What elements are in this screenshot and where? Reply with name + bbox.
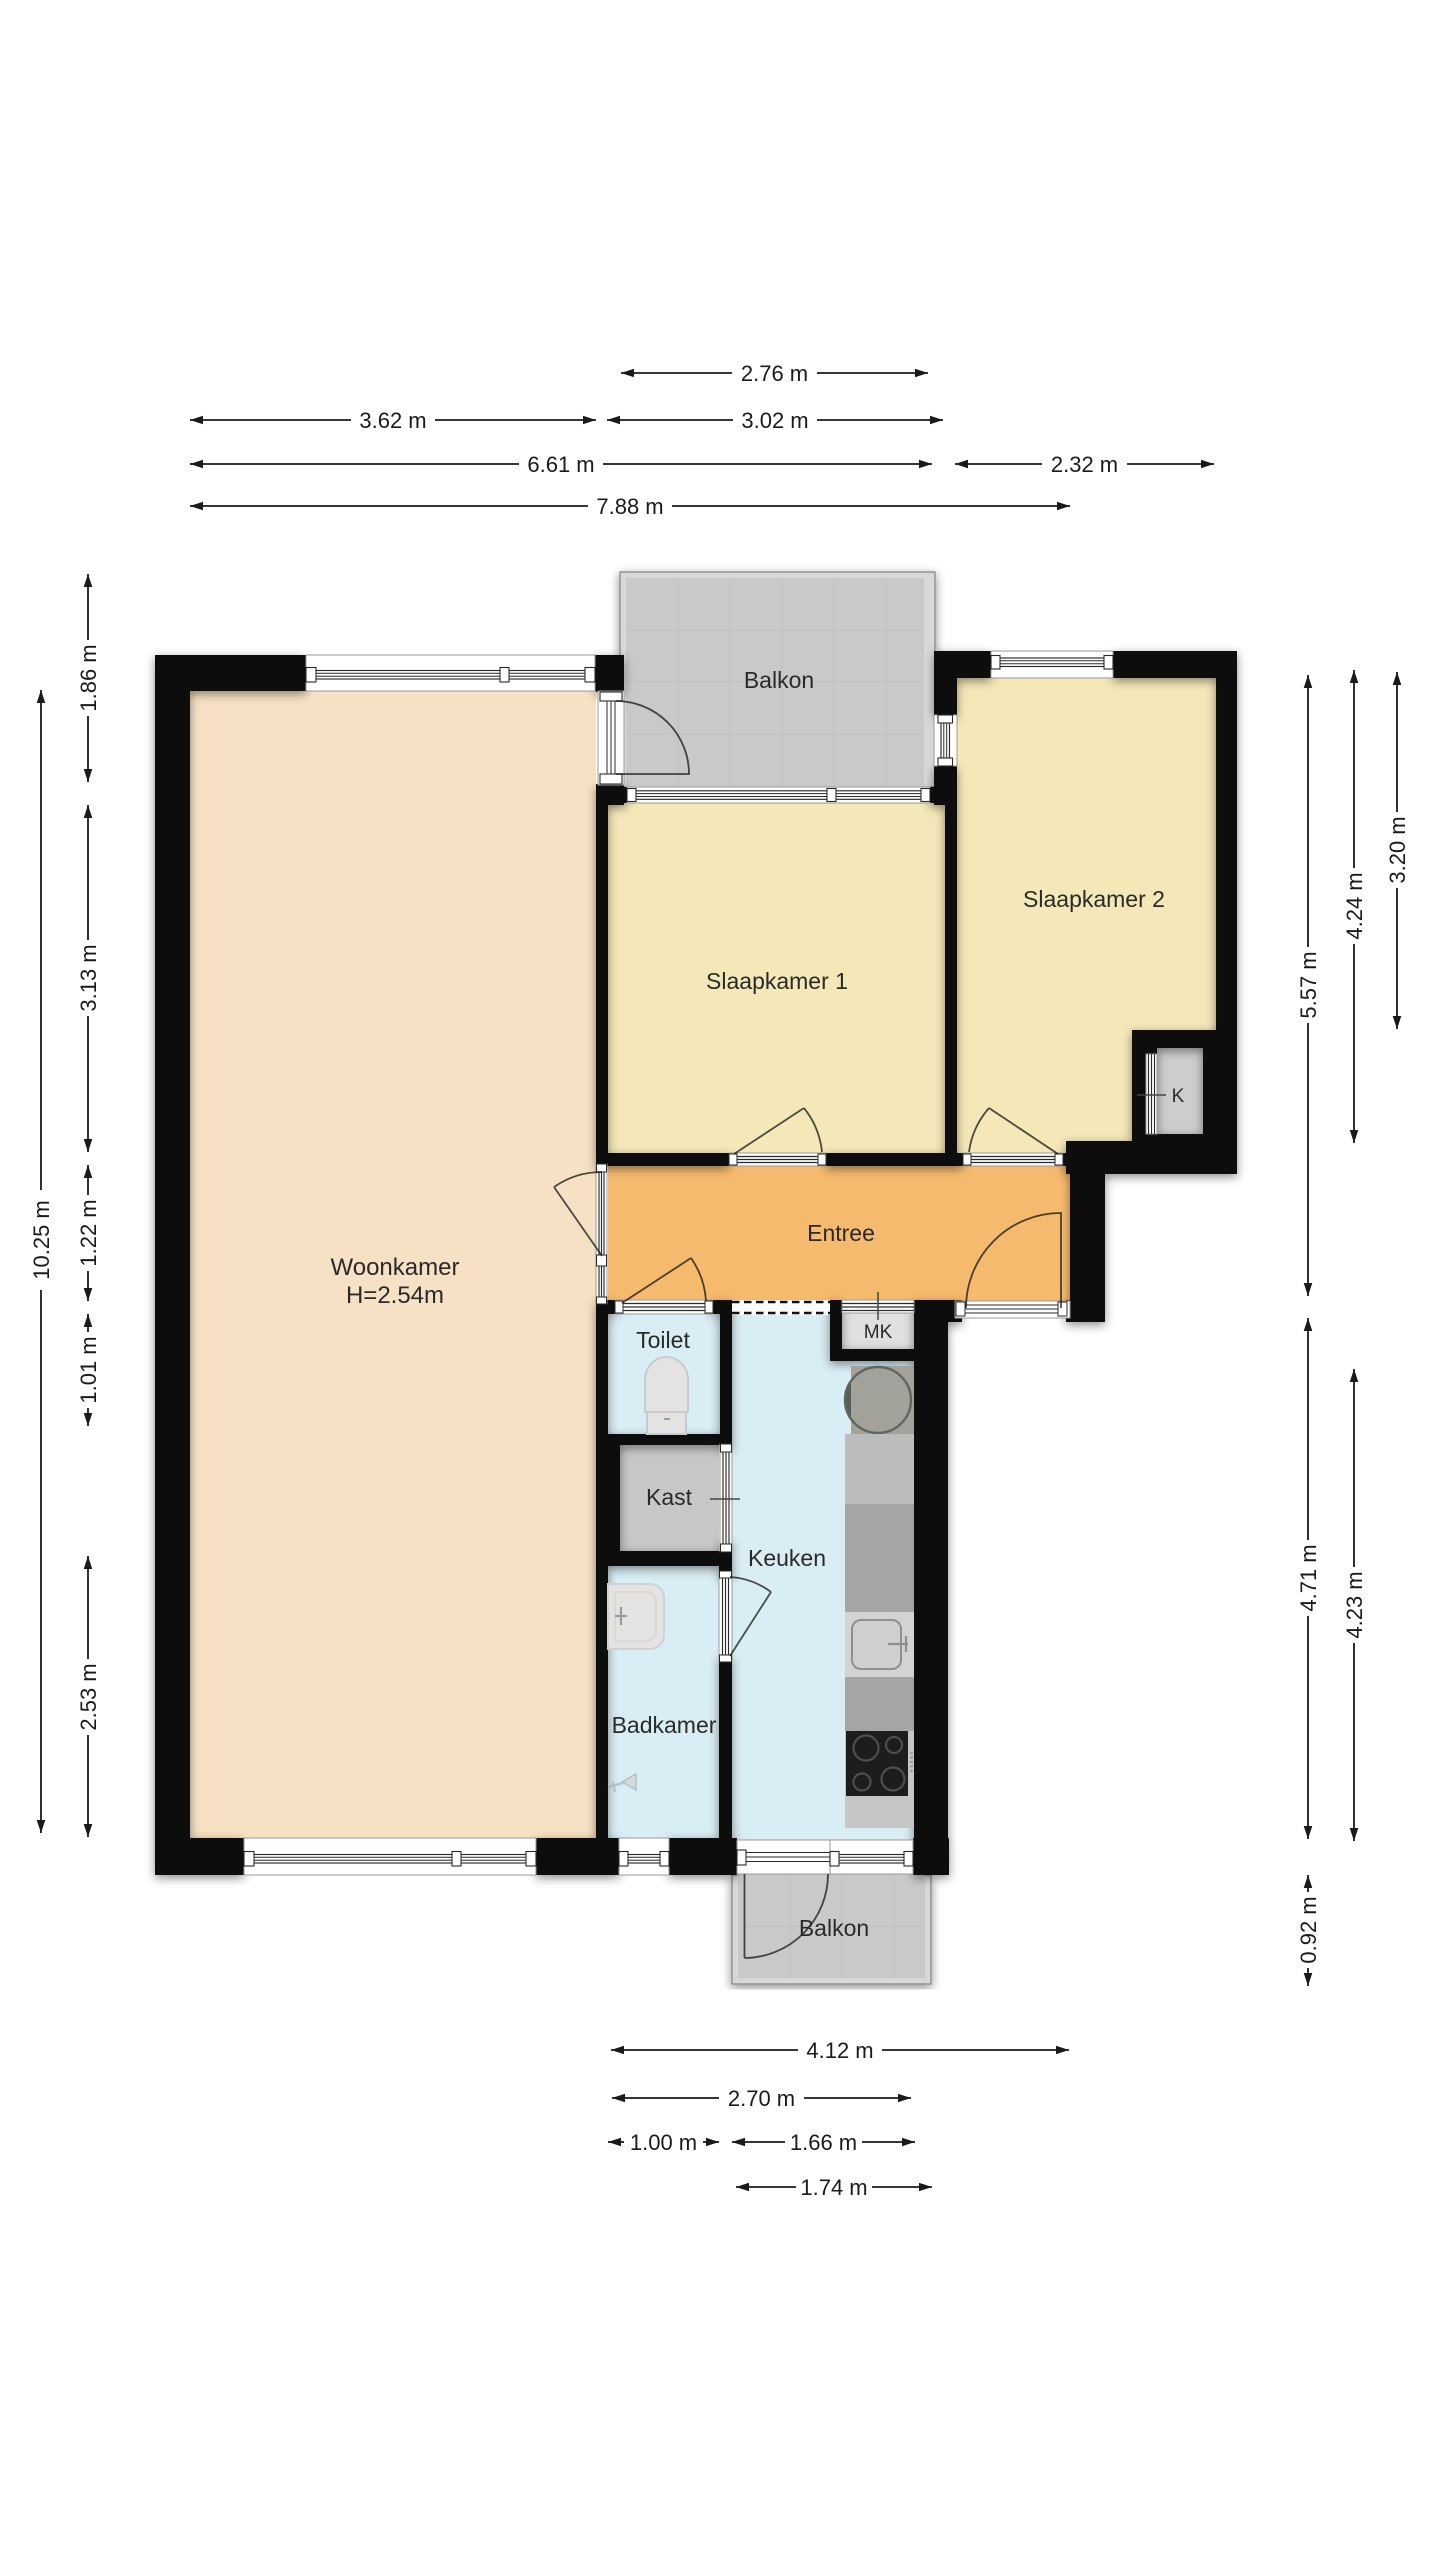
- svg-text:3.20 m: 3.20 m: [1385, 816, 1410, 883]
- svg-text:Woonkamer: Woonkamer: [331, 1254, 460, 1281]
- svg-text:Kast: Kast: [646, 1484, 693, 1510]
- svg-text:1.00 m: 1.00 m: [630, 2130, 697, 2155]
- svg-text:K: K: [1172, 1086, 1185, 1107]
- svg-text:2.53 m: 2.53 m: [76, 1663, 101, 1730]
- svg-text:1.01 m: 1.01 m: [76, 1336, 101, 1403]
- svg-text:Slaapkamer 2: Slaapkamer 2: [1023, 886, 1165, 912]
- svg-text:1.22 m: 1.22 m: [76, 1199, 101, 1266]
- svg-text:Keuken: Keuken: [748, 1545, 826, 1571]
- svg-text:H=2.54m: H=2.54m: [346, 1282, 444, 1309]
- svg-text:5.57 m: 5.57 m: [1296, 951, 1321, 1018]
- svg-text:1.74 m: 1.74 m: [800, 2175, 867, 2200]
- svg-text:3.13 m: 3.13 m: [76, 944, 101, 1011]
- svg-text:3.02 m: 3.02 m: [741, 408, 808, 433]
- svg-text:Badkamer: Badkamer: [612, 1712, 717, 1738]
- svg-text:4.12 m: 4.12 m: [806, 2038, 873, 2063]
- svg-text:Toilet: Toilet: [636, 1327, 690, 1353]
- svg-text:MK: MK: [864, 1322, 893, 1343]
- svg-text:Slaapkamer 1: Slaapkamer 1: [706, 968, 848, 994]
- svg-text:Balkon: Balkon: [744, 667, 814, 693]
- svg-text:Balkon: Balkon: [799, 1915, 869, 1941]
- svg-text:1.86 m: 1.86 m: [76, 644, 101, 711]
- svg-text:2.76 m: 2.76 m: [741, 361, 808, 386]
- svg-text:10.25 m: 10.25 m: [29, 1200, 54, 1280]
- svg-text:4.71 m: 4.71 m: [1296, 1544, 1321, 1611]
- svg-text:Entree: Entree: [807, 1220, 875, 1246]
- svg-text:2.70 m: 2.70 m: [728, 2086, 795, 2111]
- svg-text:0.92 m: 0.92 m: [1296, 1896, 1321, 1963]
- svg-text:4.24 m: 4.24 m: [1342, 872, 1367, 939]
- svg-text:2.32 m: 2.32 m: [1051, 452, 1118, 477]
- svg-text:6.61 m: 6.61 m: [527, 452, 594, 477]
- svg-text:4.23 m: 4.23 m: [1342, 1571, 1367, 1638]
- svg-text:7.88 m: 7.88 m: [596, 494, 663, 519]
- svg-text:1.66 m: 1.66 m: [790, 2130, 857, 2155]
- svg-text:3.62 m: 3.62 m: [359, 408, 426, 433]
